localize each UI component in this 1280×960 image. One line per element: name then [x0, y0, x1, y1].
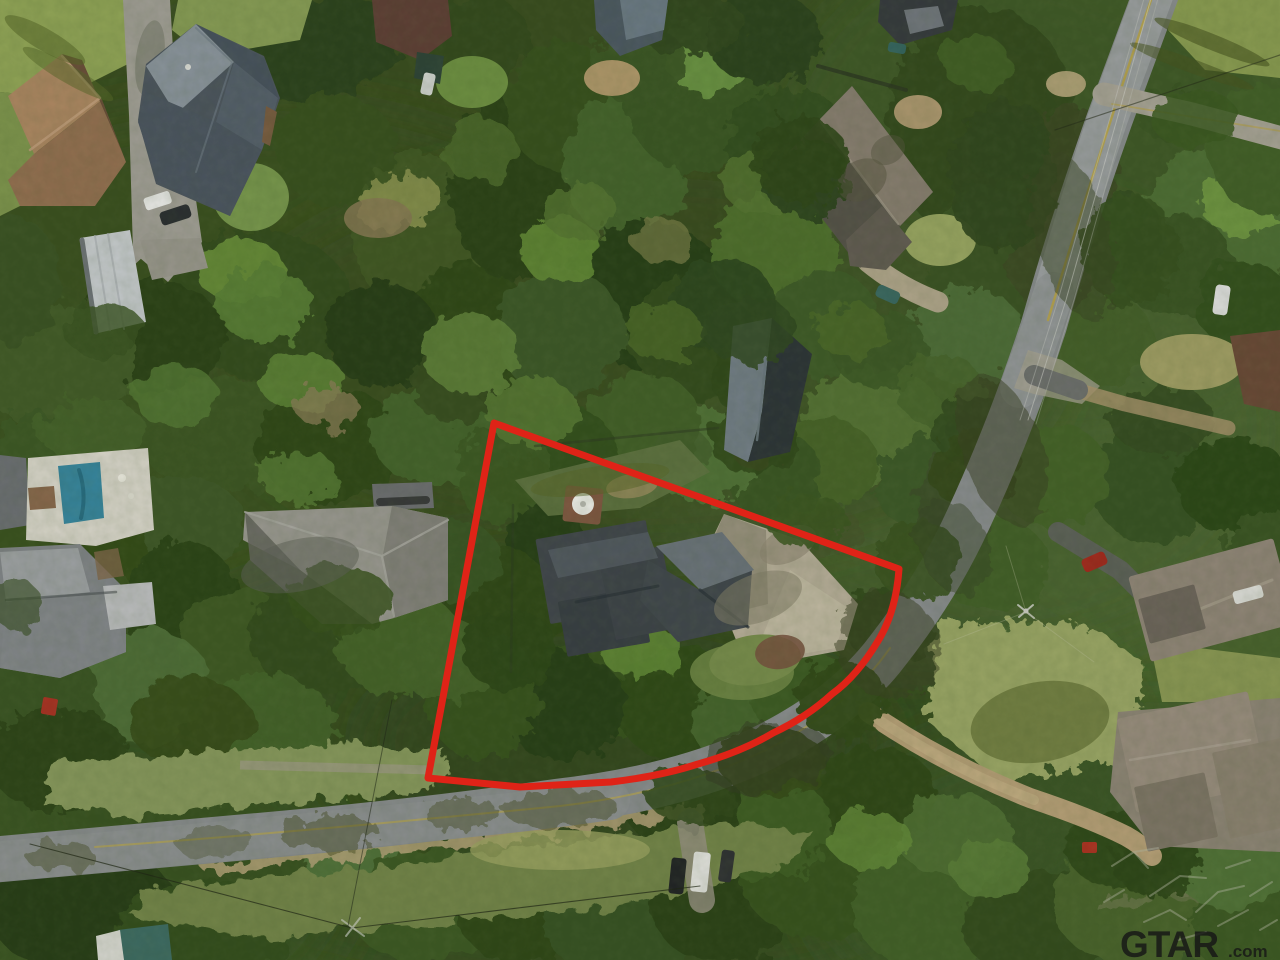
svg-text:.com: .com [1228, 942, 1268, 960]
svg-text:GTAR: GTAR [1120, 924, 1218, 960]
